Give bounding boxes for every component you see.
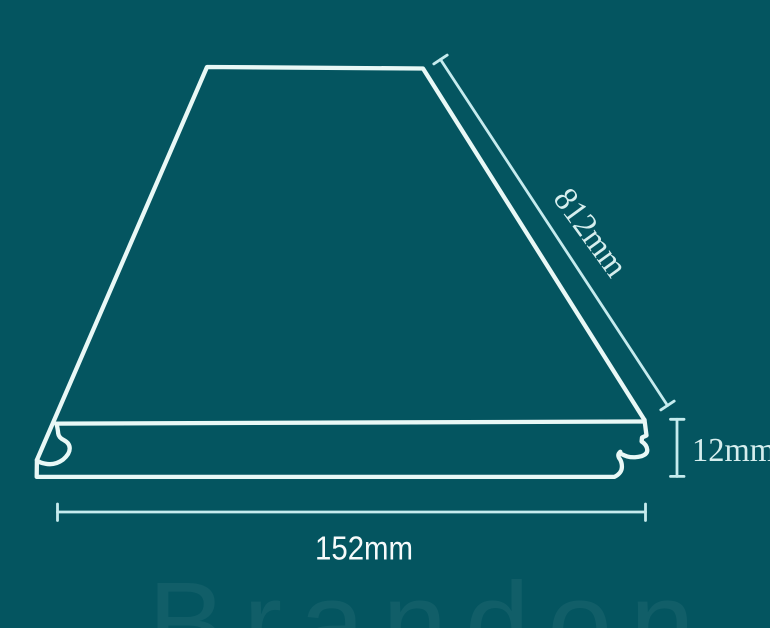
svg-text:152mm: 152mm	[315, 530, 413, 567]
svg-text:12mm: 12mm	[692, 432, 770, 469]
svg-text:Brandon: Brandon	[148, 558, 713, 628]
